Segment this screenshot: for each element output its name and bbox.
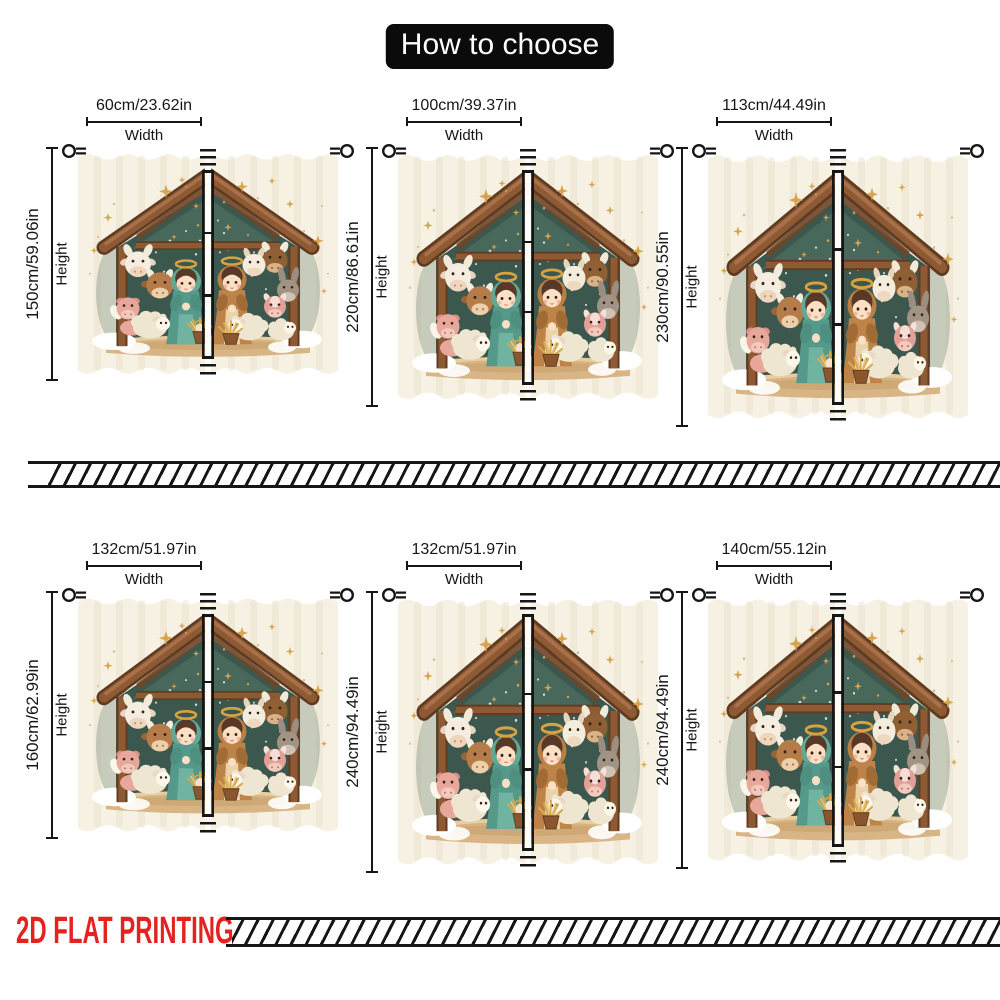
- curtain-ring-icon: [381, 141, 409, 161]
- height-label: Height: [374, 710, 391, 753]
- page-title: How to choose: [386, 24, 614, 69]
- size-panel-60x150: 60cm/23.62in Width 150cm/59.06in Height: [78, 148, 338, 380]
- width-label: Width: [86, 127, 202, 144]
- size-panel-100x220: 100cm/39.37in Width 220cm/86.61in Height: [398, 148, 658, 406]
- curtain-preview: [78, 592, 338, 838]
- height-label: Height: [374, 255, 391, 298]
- width-value: 132cm/51.97in: [86, 541, 202, 559]
- curtain-ring-icon: [61, 141, 89, 161]
- height-value: 240cm/94.49in: [343, 676, 363, 788]
- hatched-rod-bar: [226, 917, 1000, 947]
- width-measure: 60cm/23.62in Width: [86, 97, 202, 144]
- curtain-ring-icon: [327, 585, 355, 605]
- size-panel-113x230: 113cm/44.49in Width 230cm/90.55in Height: [708, 148, 968, 426]
- width-value: 100cm/39.37in: [406, 97, 522, 115]
- curtain-ring-icon: [647, 585, 675, 605]
- height-value: 150cm/59.06in: [23, 208, 43, 320]
- width-value: 113cm/44.49in: [716, 97, 832, 115]
- width-measure: 100cm/39.37in Width: [406, 97, 522, 144]
- width-label: Width: [716, 127, 832, 144]
- width-bracket-line: [716, 561, 832, 570]
- width-label: Width: [406, 571, 522, 588]
- width-measure: 140cm/55.12in Width: [716, 541, 832, 588]
- height-value: 160cm/62.99in: [23, 659, 43, 771]
- curtain-ring-icon: [957, 585, 985, 605]
- printing-method-label: 2D FLAT PRINTING: [16, 910, 234, 953]
- width-label: Width: [406, 127, 522, 144]
- height-value: 230cm/90.55in: [653, 231, 673, 343]
- width-measure: 113cm/44.49in Width: [716, 97, 832, 144]
- curtain-preview: [708, 592, 968, 868]
- width-bracket-line: [716, 117, 832, 126]
- height-label: Height: [684, 708, 701, 751]
- width-value: 60cm/23.62in: [86, 97, 202, 115]
- hatched-rod-bar: [28, 461, 1000, 488]
- product-size-guide: How to choose 60cm/23.62in Width 150cm/5…: [0, 0, 1000, 1000]
- width-bracket-line: [406, 561, 522, 570]
- curtain-ring-icon: [647, 141, 675, 161]
- size-panel-140x240: 140cm/55.12in Width 240cm/94.49in Height: [708, 592, 968, 868]
- curtain-ring-icon: [61, 585, 89, 605]
- curtain-ring-icon: [381, 585, 409, 605]
- height-value: 220cm/86.61in: [343, 221, 363, 333]
- width-value: 140cm/55.12in: [716, 541, 832, 559]
- height-label: Height: [54, 242, 71, 285]
- curtain-preview: [398, 592, 658, 872]
- width-bracket-line: [86, 117, 202, 126]
- height-label: Height: [54, 693, 71, 736]
- curtain-preview: [398, 148, 658, 406]
- curtain-ring-icon: [691, 585, 719, 605]
- width-bracket-line: [406, 117, 522, 126]
- width-measure: 132cm/51.97in Width: [86, 541, 202, 588]
- curtain-ring-icon: [327, 141, 355, 161]
- height-value: 240cm/94.49in: [653, 674, 673, 786]
- width-label: Width: [716, 571, 832, 588]
- width-bracket-line: [86, 561, 202, 570]
- curtain-preview: [708, 148, 968, 426]
- curtain-preview: [78, 148, 338, 380]
- width-label: Width: [86, 571, 202, 588]
- curtain-ring-icon: [957, 141, 985, 161]
- size-panel-132x160: 132cm/51.97in Width 160cm/62.99in Height: [78, 592, 338, 838]
- width-measure: 132cm/51.97in Width: [406, 541, 522, 588]
- curtain-ring-icon: [691, 141, 719, 161]
- width-value: 132cm/51.97in: [406, 541, 522, 559]
- height-label: Height: [684, 265, 701, 308]
- size-panel-132x240: 132cm/51.97in Width 240cm/94.49in Height: [398, 592, 658, 872]
